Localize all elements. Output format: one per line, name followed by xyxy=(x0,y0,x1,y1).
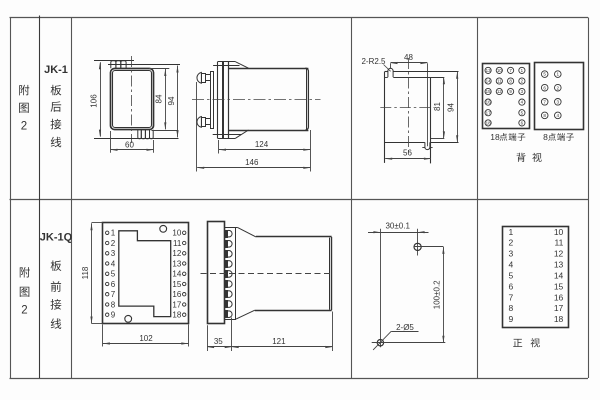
svg-text:118: 118 xyxy=(81,266,90,279)
svg-text:10: 10 xyxy=(497,68,502,73)
svg-text:2: 2 xyxy=(21,121,27,133)
svg-text:JK-1Q: JK-1Q xyxy=(40,232,73,244)
svg-text:18: 18 xyxy=(486,121,491,126)
svg-text:8: 8 xyxy=(509,303,514,313)
svg-text:6: 6 xyxy=(509,281,514,291)
svg-text:13: 13 xyxy=(172,259,181,268)
svg-text:13: 13 xyxy=(486,68,491,73)
svg-text:2: 2 xyxy=(111,239,116,248)
svg-text:18: 18 xyxy=(172,311,181,320)
svg-text:9: 9 xyxy=(509,314,514,324)
svg-text:7: 7 xyxy=(543,99,546,104)
svg-text:14: 14 xyxy=(486,79,491,84)
svg-text:10: 10 xyxy=(554,227,564,237)
svg-text:94: 94 xyxy=(447,103,456,112)
svg-text:18: 18 xyxy=(490,132,500,142)
svg-text:5: 5 xyxy=(111,270,116,279)
svg-text:15: 15 xyxy=(172,280,181,289)
svg-text:60: 60 xyxy=(125,140,134,149)
svg-text:4: 4 xyxy=(111,259,116,268)
svg-text:8: 8 xyxy=(543,132,548,142)
svg-text:16: 16 xyxy=(554,292,564,302)
svg-text:7: 7 xyxy=(111,290,116,299)
svg-text:9: 9 xyxy=(111,311,116,320)
svg-text:3: 3 xyxy=(111,249,116,258)
svg-text:1: 1 xyxy=(509,227,514,237)
svg-text:2-Ø5: 2-Ø5 xyxy=(396,323,414,332)
svg-text:84: 84 xyxy=(155,94,164,103)
svg-text:11: 11 xyxy=(554,238,563,248)
svg-text:15: 15 xyxy=(554,281,564,291)
svg-text:100±0.2: 100±0.2 xyxy=(433,280,442,309)
svg-text:30±0.1: 30±0.1 xyxy=(385,222,410,231)
svg-text:14: 14 xyxy=(172,270,181,279)
svg-text:17: 17 xyxy=(486,110,491,115)
svg-text:146: 146 xyxy=(245,158,259,167)
svg-text:4: 4 xyxy=(509,260,514,270)
svg-text:8: 8 xyxy=(111,300,116,309)
svg-text:102: 102 xyxy=(139,334,153,343)
svg-text:13: 13 xyxy=(554,260,564,270)
svg-text:35: 35 xyxy=(214,337,223,346)
svg-text:JK-1: JK-1 xyxy=(44,64,68,76)
svg-text:121: 121 xyxy=(272,337,286,346)
svg-text:2-R2.5: 2-R2.5 xyxy=(361,57,386,66)
svg-text:6: 6 xyxy=(543,85,546,90)
svg-text:2: 2 xyxy=(557,85,560,90)
svg-text:1: 1 xyxy=(557,72,560,77)
svg-text:8: 8 xyxy=(543,113,546,118)
svg-text:12: 12 xyxy=(172,249,181,258)
svg-text:81: 81 xyxy=(433,102,442,111)
svg-text:124: 124 xyxy=(255,140,269,149)
svg-text:3: 3 xyxy=(557,99,560,104)
svg-text:2: 2 xyxy=(509,238,514,248)
svg-text:18: 18 xyxy=(554,314,564,324)
svg-text:106: 106 xyxy=(89,94,98,108)
svg-text:16: 16 xyxy=(172,290,181,299)
svg-text:11: 11 xyxy=(497,79,502,84)
svg-text:1: 1 xyxy=(111,229,116,238)
svg-text:2: 2 xyxy=(21,305,27,317)
svg-text:5: 5 xyxy=(509,271,514,281)
svg-text:16: 16 xyxy=(486,100,491,105)
svg-text:17: 17 xyxy=(172,300,181,309)
svg-text:10: 10 xyxy=(172,229,181,238)
svg-text:56: 56 xyxy=(403,149,412,158)
svg-text:17: 17 xyxy=(554,303,564,313)
svg-text:94: 94 xyxy=(167,96,176,105)
svg-text:3: 3 xyxy=(509,249,514,259)
svg-text:5: 5 xyxy=(543,72,546,77)
svg-text:14: 14 xyxy=(554,271,564,281)
svg-text:7: 7 xyxy=(509,292,514,302)
svg-text:15: 15 xyxy=(486,89,491,94)
svg-text:12: 12 xyxy=(554,249,564,259)
svg-text:12: 12 xyxy=(497,89,502,94)
svg-text:6: 6 xyxy=(111,280,116,289)
svg-text:4: 4 xyxy=(557,113,560,118)
svg-text:11: 11 xyxy=(173,239,182,248)
